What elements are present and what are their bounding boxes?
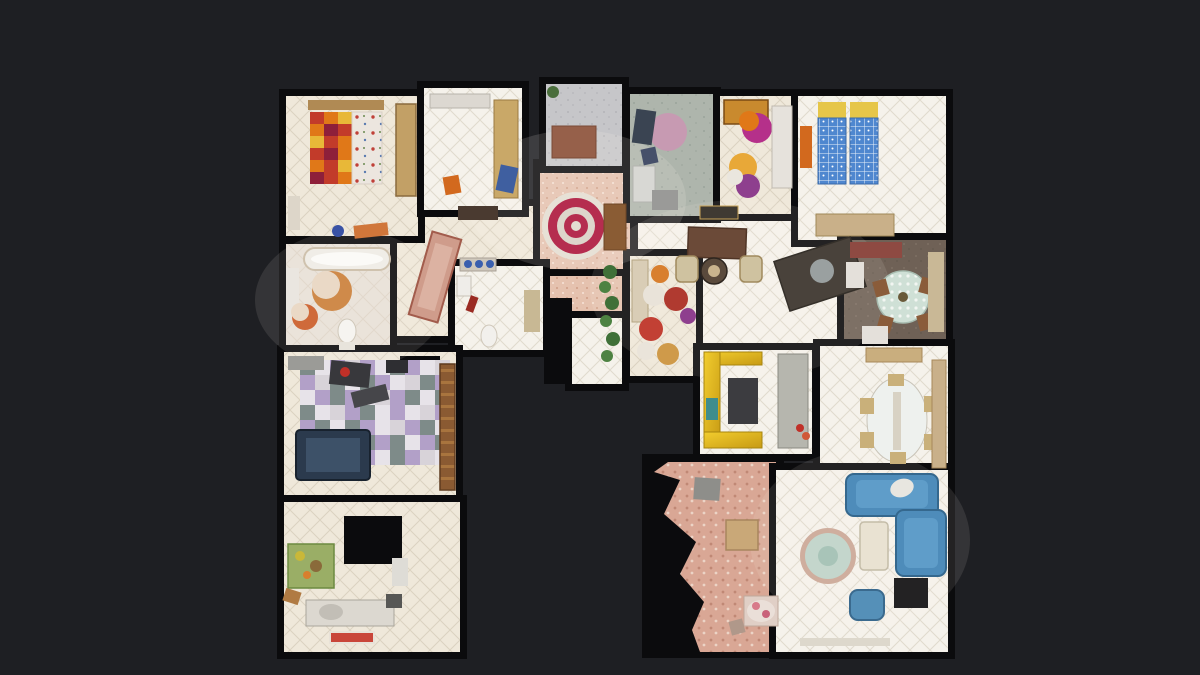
wood-shelf	[604, 204, 626, 250]
bed-checkered-duvet	[310, 160, 324, 172]
checker-floor	[390, 435, 405, 450]
cabinet	[430, 94, 490, 108]
blue-ceramic	[464, 260, 472, 268]
red-counter	[850, 242, 902, 258]
table-center	[898, 292, 908, 302]
twin-bed-duvet	[818, 118, 846, 184]
orange-chair	[443, 175, 462, 196]
checker-floor	[390, 390, 405, 405]
balcony-table-top	[747, 600, 775, 622]
wardrobe-south	[816, 214, 894, 236]
dining-chair	[888, 374, 904, 386]
table-item	[295, 551, 305, 561]
bed-checkered-duvet	[310, 172, 324, 184]
checker-floor	[315, 375, 330, 390]
ornate-table-top	[708, 265, 720, 277]
corridor-plant	[606, 332, 620, 346]
checker-floor	[420, 435, 435, 450]
checker-floor	[315, 390, 330, 405]
crescent-rug-cut	[291, 303, 309, 321]
checker-floor	[300, 390, 315, 405]
checker-floor	[405, 405, 420, 420]
blue-ceramic	[475, 260, 483, 268]
plant	[547, 86, 559, 98]
coffee-table	[860, 522, 888, 570]
scan-hole	[544, 298, 572, 384]
rug-orange-crescent	[739, 111, 759, 131]
bed-checkered-duvet	[324, 112, 338, 124]
checker-floor	[330, 405, 345, 420]
table-item	[303, 571, 311, 579]
round-rug	[639, 317, 663, 341]
bed-checkered-duvet	[310, 112, 324, 124]
wardrobe	[396, 104, 416, 196]
checker-floor	[420, 420, 435, 435]
dark-kitchen-rug	[728, 378, 758, 424]
bed-checkered-duvet	[324, 124, 338, 136]
red-item	[802, 432, 810, 440]
corridor-plant	[600, 315, 612, 327]
round-rug	[643, 284, 665, 306]
orange-shelf	[800, 126, 812, 168]
bed-headboard	[308, 100, 384, 110]
window-sill	[800, 638, 890, 646]
scan-hole	[344, 516, 402, 564]
bench	[288, 196, 300, 230]
sideboard	[866, 348, 922, 362]
bookshelf	[440, 364, 455, 490]
sink	[457, 276, 471, 296]
pink-dish	[752, 602, 760, 610]
checker-floor	[330, 390, 345, 405]
navy-bed-top	[306, 438, 360, 472]
console-table	[700, 206, 738, 219]
dark-chest	[458, 206, 498, 220]
checker-floor	[315, 405, 330, 420]
corridor-plant	[599, 281, 611, 293]
twin-bed-pillow	[818, 102, 846, 118]
bed-checkered-duvet	[324, 160, 338, 172]
doormat	[552, 126, 596, 158]
checker-floor	[375, 420, 390, 435]
checker-floor	[300, 405, 315, 420]
bed-checkered-duvet	[324, 148, 338, 160]
red-item	[796, 424, 804, 432]
bed-checkered-duvet	[324, 172, 338, 184]
round-living-rug	[818, 546, 838, 566]
round-red-rug	[571, 221, 581, 231]
white-appliance	[862, 326, 888, 344]
bed-checkered-duvet	[338, 148, 352, 160]
bed-checkered-duvet	[338, 112, 352, 124]
blue-armchair	[850, 590, 884, 620]
bed-floral-duvet	[352, 112, 382, 184]
bed-checkered-duvet	[310, 136, 324, 148]
round-rug	[664, 287, 688, 311]
kitchen-sink	[319, 604, 343, 620]
bed-checkered-duvet	[338, 136, 352, 148]
round-rug	[680, 308, 696, 324]
armchair	[740, 256, 762, 282]
checker-floor	[420, 390, 435, 405]
machine-accent	[340, 367, 350, 377]
dining-chair	[860, 398, 874, 414]
round-rug	[637, 342, 655, 360]
checker-floor	[390, 450, 405, 465]
stove	[386, 594, 402, 608]
checker-floor	[390, 420, 405, 435]
blue-pot	[332, 225, 344, 237]
gold-cabinet	[704, 432, 762, 448]
bed-checkered-duvet	[338, 172, 352, 184]
checker-floor	[300, 375, 315, 390]
round-rug	[657, 343, 679, 365]
checker-floor	[420, 375, 435, 390]
bed-checkered-duvet	[338, 160, 352, 172]
bed-checkered-duvet	[310, 124, 324, 136]
toilet	[338, 319, 356, 343]
wardrobe-white	[772, 106, 792, 188]
floorplan-canvas[interactable]	[0, 0, 1200, 675]
toilet	[481, 325, 497, 347]
table-runner	[893, 392, 901, 450]
rug-white	[727, 169, 743, 185]
table-item	[310, 560, 322, 572]
desk-white	[633, 166, 655, 202]
checker-floor	[405, 420, 420, 435]
rug-medallion	[810, 259, 834, 283]
metal-cabinet	[652, 190, 678, 210]
display-cabinet	[932, 360, 946, 468]
corridor-plant	[601, 350, 613, 362]
exercise-machine	[386, 360, 408, 373]
dining-chair	[890, 452, 906, 464]
exercise-machine	[329, 360, 371, 388]
checker-floor	[375, 405, 390, 420]
checker-floor	[360, 405, 375, 420]
gym-cabinet	[288, 356, 324, 370]
red-runner	[330, 632, 374, 643]
checker-floor	[405, 435, 420, 450]
twin-bed-pillow	[850, 102, 878, 118]
armchair	[676, 256, 698, 282]
pink-dish	[762, 610, 770, 618]
kitchen-cabinet	[928, 252, 944, 332]
crescent-rug-cut	[312, 271, 340, 299]
bed-checkered-duvet	[338, 124, 352, 136]
bed-checkered-duvet	[324, 136, 338, 148]
corridor-plant	[605, 296, 619, 310]
bathtub-basin	[311, 252, 383, 266]
cabinet-tall	[524, 290, 540, 332]
checker-floor	[390, 375, 405, 390]
white-appliance	[846, 262, 864, 288]
bed-checkered-duvet	[310, 148, 324, 160]
checker-floor	[405, 390, 420, 405]
twin-bed-duvet	[850, 118, 878, 184]
checker-floor	[375, 450, 390, 465]
checker-floor	[375, 435, 390, 450]
checker-floor	[420, 450, 435, 465]
checker-floor	[420, 405, 435, 420]
teal-item	[706, 398, 718, 420]
tan-rug	[726, 520, 758, 550]
checker-floor	[390, 405, 405, 420]
corridor-plant	[603, 265, 617, 279]
checker-floor	[420, 360, 435, 375]
toilet-tank	[339, 342, 355, 350]
floorplan-viewer	[0, 0, 1200, 675]
brown-rug	[687, 227, 746, 259]
gray-doormat	[693, 477, 720, 501]
checker-floor	[405, 450, 420, 465]
fridge	[392, 558, 408, 586]
round-rug	[651, 265, 669, 283]
dining-chair	[860, 432, 874, 448]
blue-ceramic	[486, 260, 494, 268]
checker-floor	[405, 375, 420, 390]
sofa-cushion	[904, 518, 938, 568]
